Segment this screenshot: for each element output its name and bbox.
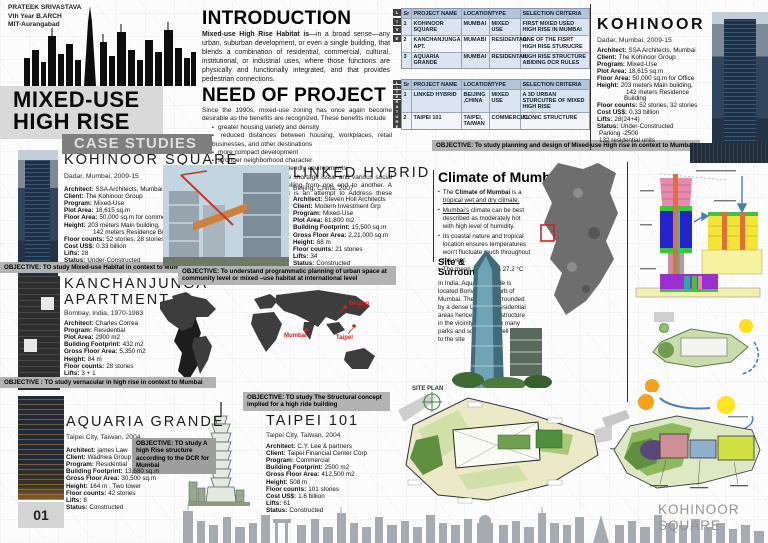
live-case-study-table: LIVE Sr PROJECT NAME LOCATION TYPE SELEC… <box>393 8 590 69</box>
detail-row: Status:Constructed <box>66 504 186 511</box>
detail-row: Plot Area:61,800 m2 <box>293 217 429 224</box>
kohinoor-left-location: Dadar, Mumbai, 2009-15 <box>64 173 139 180</box>
introduction-heading: INTRODUCTION <box>202 8 351 30</box>
vertical-label-letter: L <box>393 9 401 16</box>
need-bullet: stronger neighborhood character <box>212 157 392 165</box>
linked-hybrid-details: Architect:Steven Holl ArchitectsClient:M… <box>293 196 429 267</box>
taipei-details: Architect:C.Y. Lee & partnersClient:Taip… <box>266 443 398 514</box>
table-row: 2 KANCHANJUNGA APT. MUMABI RESIDENTAIL O… <box>402 35 589 52</box>
need-bullet: more compact development <box>212 149 392 157</box>
objective-linked-hybrid: OBJECTIVE: To understand programmatic pl… <box>178 266 396 285</box>
table-header-row: Sr PROJECT NAME LOCATION TYPE SELECTION … <box>402 9 589 18</box>
podium-section-diagram <box>632 272 764 300</box>
need-bullet: greater housing variety and density <box>212 124 392 132</box>
footer-brand: KOHINOOR SQUARE <box>658 502 740 533</box>
detail-row: Architect:james Law <box>66 447 186 454</box>
city-skyline-illustration <box>22 2 197 86</box>
literature-vertical-label: LITERATURE <box>393 79 401 130</box>
detail-row: Floor counts:101 stories <box>266 486 398 493</box>
world-map: Mumbai Beijing Taipei <box>158 286 398 390</box>
detail-row: Lifts:8 <box>66 497 186 504</box>
detail-row: Client:Modern Investment Grp <box>293 203 429 210</box>
detail-row: Height:68 m <box>293 239 429 246</box>
divider-line <box>590 4 591 150</box>
objective-taipei: OBJECTIVE: TO study The Structural conce… <box>243 392 390 411</box>
detail-row: Architect:Steven Holl Architects <box>293 196 429 203</box>
kanchanjunga-photo <box>18 276 60 390</box>
map-label-mumbai: Mumbai <box>284 333 307 339</box>
table-row: 3 AQUARIA GRANDE MUMBAI RESIDENTAIL HIGH… <box>402 52 589 69</box>
kohinoor-right-location: Dadar, Mumbai, 2009-15 <box>597 37 672 44</box>
need-of-project-heading: NEED OF PROJECT <box>202 85 386 107</box>
climate-bullet-1: ▪The Climate of Mumbai is a tropical wet… <box>438 189 532 205</box>
detail-row: Program:Residential <box>66 461 186 468</box>
detail-row: Height:164 m , Two tower <box>66 483 186 490</box>
detail-row: Floor counts:21 stories <box>293 246 429 253</box>
detail-row: Gross Floor Area:2,21,000 sq.m <box>293 232 429 239</box>
linked-hybrid-location: Beijing, China, 2007 <box>293 185 354 192</box>
detail-row: Cost US$:1.6 billion <box>266 493 398 500</box>
literature-case-study-table: LITERATURE Sr PROJECT NAME LOCATION TYPE… <box>393 79 590 130</box>
poster-canvas: PRATEEK SRIVASTAVA Vth Year B.ARCH MIT-A… <box>0 0 768 543</box>
detail-row: Client:Taipei Financial Center Corp <box>266 450 398 457</box>
poster-title-line2: HIGH RISE <box>13 111 163 133</box>
vertical-label-letter: E <box>393 35 401 42</box>
aquaria-title: AQUARIA GRANDE <box>66 414 225 430</box>
detail-row: Gross Floor Area:30,500 sq.m <box>66 475 186 482</box>
detail-row: Client:Wadhwa Group <box>66 454 186 461</box>
kohinoor-tower-photo-left <box>18 150 58 276</box>
program-section-diagram <box>630 160 768 278</box>
detail-row: Floor counts:42 stories <box>66 490 186 497</box>
detail-row: Architect:C.Y. Lee & partners <box>266 443 398 450</box>
kanchanjunga-location: Bombay, India, 1970-1983 <box>64 310 143 317</box>
need-paragraph-1: Since the 1990s, mixed-use zoning has on… <box>202 107 392 123</box>
climate-bullet-2: ▪Mumbai's climate can be best described … <box>438 207 532 231</box>
site-context-plan-small <box>636 306 766 392</box>
map-label-beijing: Beijing <box>349 301 369 307</box>
detail-row: Building Footprint:15,500 sq.m <box>293 224 429 231</box>
detail-row: Lifts:34 <box>293 253 429 260</box>
table-row: 2 TAIPEI 101 TAIPEI, TAIWAN COMMERCIAL I… <box>402 112 589 129</box>
page-number: 01 <box>18 502 64 528</box>
site-plan-label: SITE PLAN <box>412 386 443 392</box>
detail-row: 142 meters Residence Building <box>597 90 711 104</box>
master-plan-drawing <box>602 388 768 512</box>
aquaria-render-photo <box>452 246 552 388</box>
divider-line <box>627 162 628 402</box>
detail-row: Program:Commercial <box>266 457 398 464</box>
kohinoor-right-details: Architect:SSA Architects, MumbaiClient:T… <box>597 48 711 145</box>
live-vertical-label: LIVE <box>393 8 401 69</box>
kohinoor-tower-photo-right <box>712 12 768 160</box>
detail-row: Program:Mixed-Use <box>293 210 429 217</box>
detail-row: Building Footprint:2500 m2 <box>266 464 398 471</box>
aquaria-photo <box>18 396 64 500</box>
aquaria-details: Architect:james LawClient:Wadhwa GroupPr… <box>66 447 186 511</box>
need-bullet: reduced distances between housing, workp… <box>212 132 392 148</box>
divider-line <box>433 170 434 262</box>
poster-title-box: MIXED-USE HIGH RISE <box>0 86 163 139</box>
linked-hybrid-photo <box>163 165 289 266</box>
map-label-taipei: Taipei <box>336 335 353 341</box>
linked-hybrid-title: LINKED HYBRID <box>293 165 430 181</box>
case-studies-banner: CASE STUDIES <box>62 134 212 154</box>
detail-row: Height:508 m <box>266 479 398 486</box>
taipei-location: Taipei City, Taiwan, 2004 <box>266 432 341 439</box>
table-row: 1 LINKED HYBRID BEIJING ,CHINA MIXED USE… <box>402 89 589 112</box>
detail-row: Building Footprint:13,680 sq.m <box>66 468 186 475</box>
vertical-label-letter: I <box>393 18 401 25</box>
table-row: 1 KOHINOOR SQUARE MUMBAI MIXED USE FIRST… <box>402 18 589 35</box>
introduction-body: Mixed-use High Rise Habitat is—in a broa… <box>202 31 390 85</box>
detail-row: Gross Floor Area:412,500 m2 <box>266 471 398 478</box>
aquaria-location: Taipei City, Taiwan, 2004 <box>66 434 141 441</box>
taipei-title: TAIPEI 101 <box>266 413 359 429</box>
vertical-label-letter: V <box>393 26 401 33</box>
poster-title-line1: MIXED-USE <box>13 89 163 111</box>
vertical-label-letter: E <box>393 124 401 128</box>
table-header-row: Sr PROJECT NAME LOCATION TYPE SELECTION … <box>402 80 589 89</box>
